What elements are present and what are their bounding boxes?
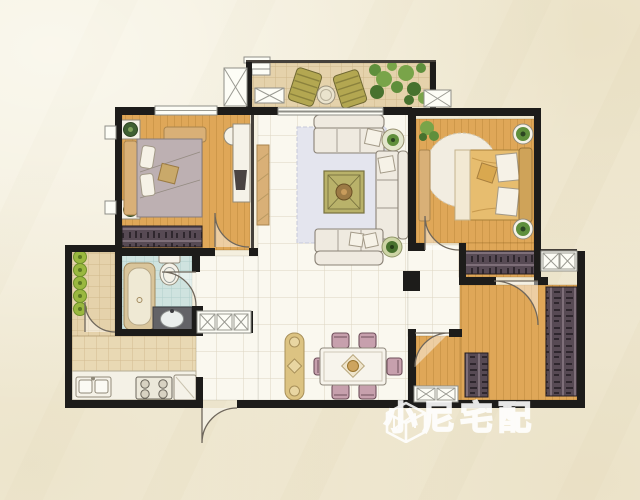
- sofa-top: [314, 115, 384, 153]
- nightstand-plant: [513, 124, 533, 144]
- headboard: [124, 141, 137, 215]
- monitor: [234, 170, 247, 190]
- storage-box-balcony-left: [224, 68, 247, 106]
- shoe-cabinet: [197, 311, 251, 333]
- desk: [233, 124, 250, 202]
- dining-chair: [359, 333, 376, 348]
- window-sill: [105, 126, 116, 139]
- fridge: [174, 375, 196, 400]
- kitchen-sink: [76, 377, 111, 398]
- dining-table: [320, 348, 386, 385]
- floorplan-svg: [0, 0, 640, 500]
- window-cabinet-bottom: [414, 386, 458, 402]
- round-table: [317, 86, 335, 104]
- tv-cabinet: [257, 145, 269, 225]
- storage-box-balcony-mid: [255, 88, 284, 103]
- cabinet: [465, 353, 488, 397]
- coffee-table: [324, 171, 364, 213]
- dining-chair: [332, 384, 349, 399]
- side-table-plant: [382, 129, 404, 151]
- dining-chair: [387, 358, 402, 375]
- storage-box-balcony-right: [424, 90, 451, 107]
- console-table: [285, 333, 304, 400]
- dining-chair: [359, 384, 376, 399]
- balcony-sliding-door: [278, 108, 383, 115]
- window-bedroom-left: [155, 106, 217, 115]
- vanity-sink: [153, 307, 192, 331]
- cooktop: [136, 377, 172, 399]
- double-bed: [455, 148, 532, 222]
- nightstand-plant: [121, 120, 140, 139]
- toilet: [159, 253, 180, 285]
- nightstand-plant: [513, 219, 533, 239]
- sofa-bottom: [315, 229, 383, 265]
- window-sill: [105, 201, 116, 214]
- floorplan-image: 小尼宅配: [0, 0, 640, 500]
- side-table-plant: [382, 237, 402, 257]
- wardrobe: [462, 251, 535, 274]
- chaise-sofa: [376, 151, 408, 239]
- double-bed: [124, 139, 202, 217]
- door-main-entry: [202, 408, 237, 443]
- window-right: [541, 251, 577, 271]
- bench: [419, 150, 430, 221]
- wardrobe: [546, 287, 577, 396]
- kitchen-furniture: [72, 371, 196, 400]
- wardrobe: [122, 226, 202, 247]
- bathtub: [124, 263, 155, 330]
- dining-chair: [332, 333, 349, 348]
- headboard: [519, 148, 532, 222]
